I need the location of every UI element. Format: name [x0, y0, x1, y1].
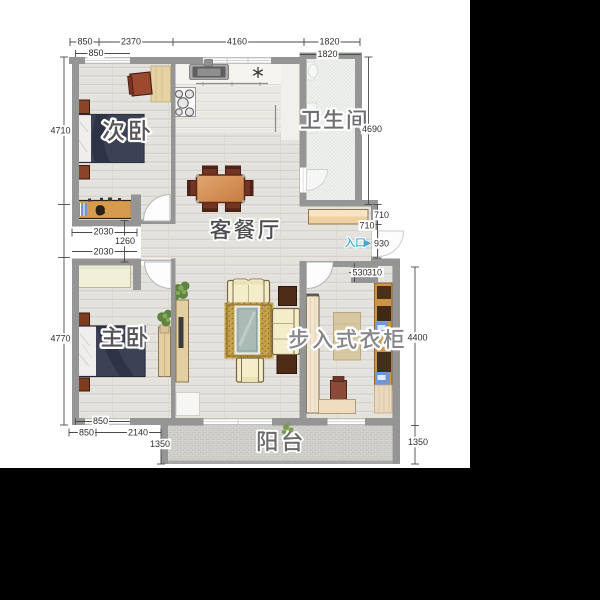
- svg-text:710: 710: [359, 221, 374, 231]
- svg-text:1820: 1820: [319, 37, 339, 47]
- svg-text:4690: 4690: [362, 124, 382, 134]
- svg-text:850: 850: [77, 37, 92, 47]
- svg-text:1350: 1350: [408, 437, 428, 447]
- svg-text:710: 710: [374, 210, 389, 220]
- svg-text:1350: 1350: [150, 439, 170, 449]
- svg-text:1260: 1260: [115, 236, 135, 246]
- svg-text:530: 530: [352, 268, 367, 278]
- svg-text:2370: 2370: [121, 37, 141, 47]
- svg-text:1820: 1820: [317, 49, 337, 59]
- svg-text:4160: 4160: [227, 37, 247, 47]
- svg-text:930: 930: [374, 239, 389, 249]
- svg-text:4400: 4400: [407, 333, 427, 343]
- svg-text:850: 850: [93, 416, 108, 426]
- svg-text:4710: 4710: [50, 126, 70, 136]
- svg-text:4770: 4770: [50, 334, 70, 344]
- svg-text:850: 850: [88, 48, 103, 58]
- svg-text:310: 310: [367, 268, 382, 278]
- svg-text:2140: 2140: [128, 428, 148, 438]
- svg-text:850: 850: [79, 428, 94, 438]
- svg-text:2030: 2030: [93, 247, 113, 257]
- svg-text:2030: 2030: [93, 227, 113, 237]
